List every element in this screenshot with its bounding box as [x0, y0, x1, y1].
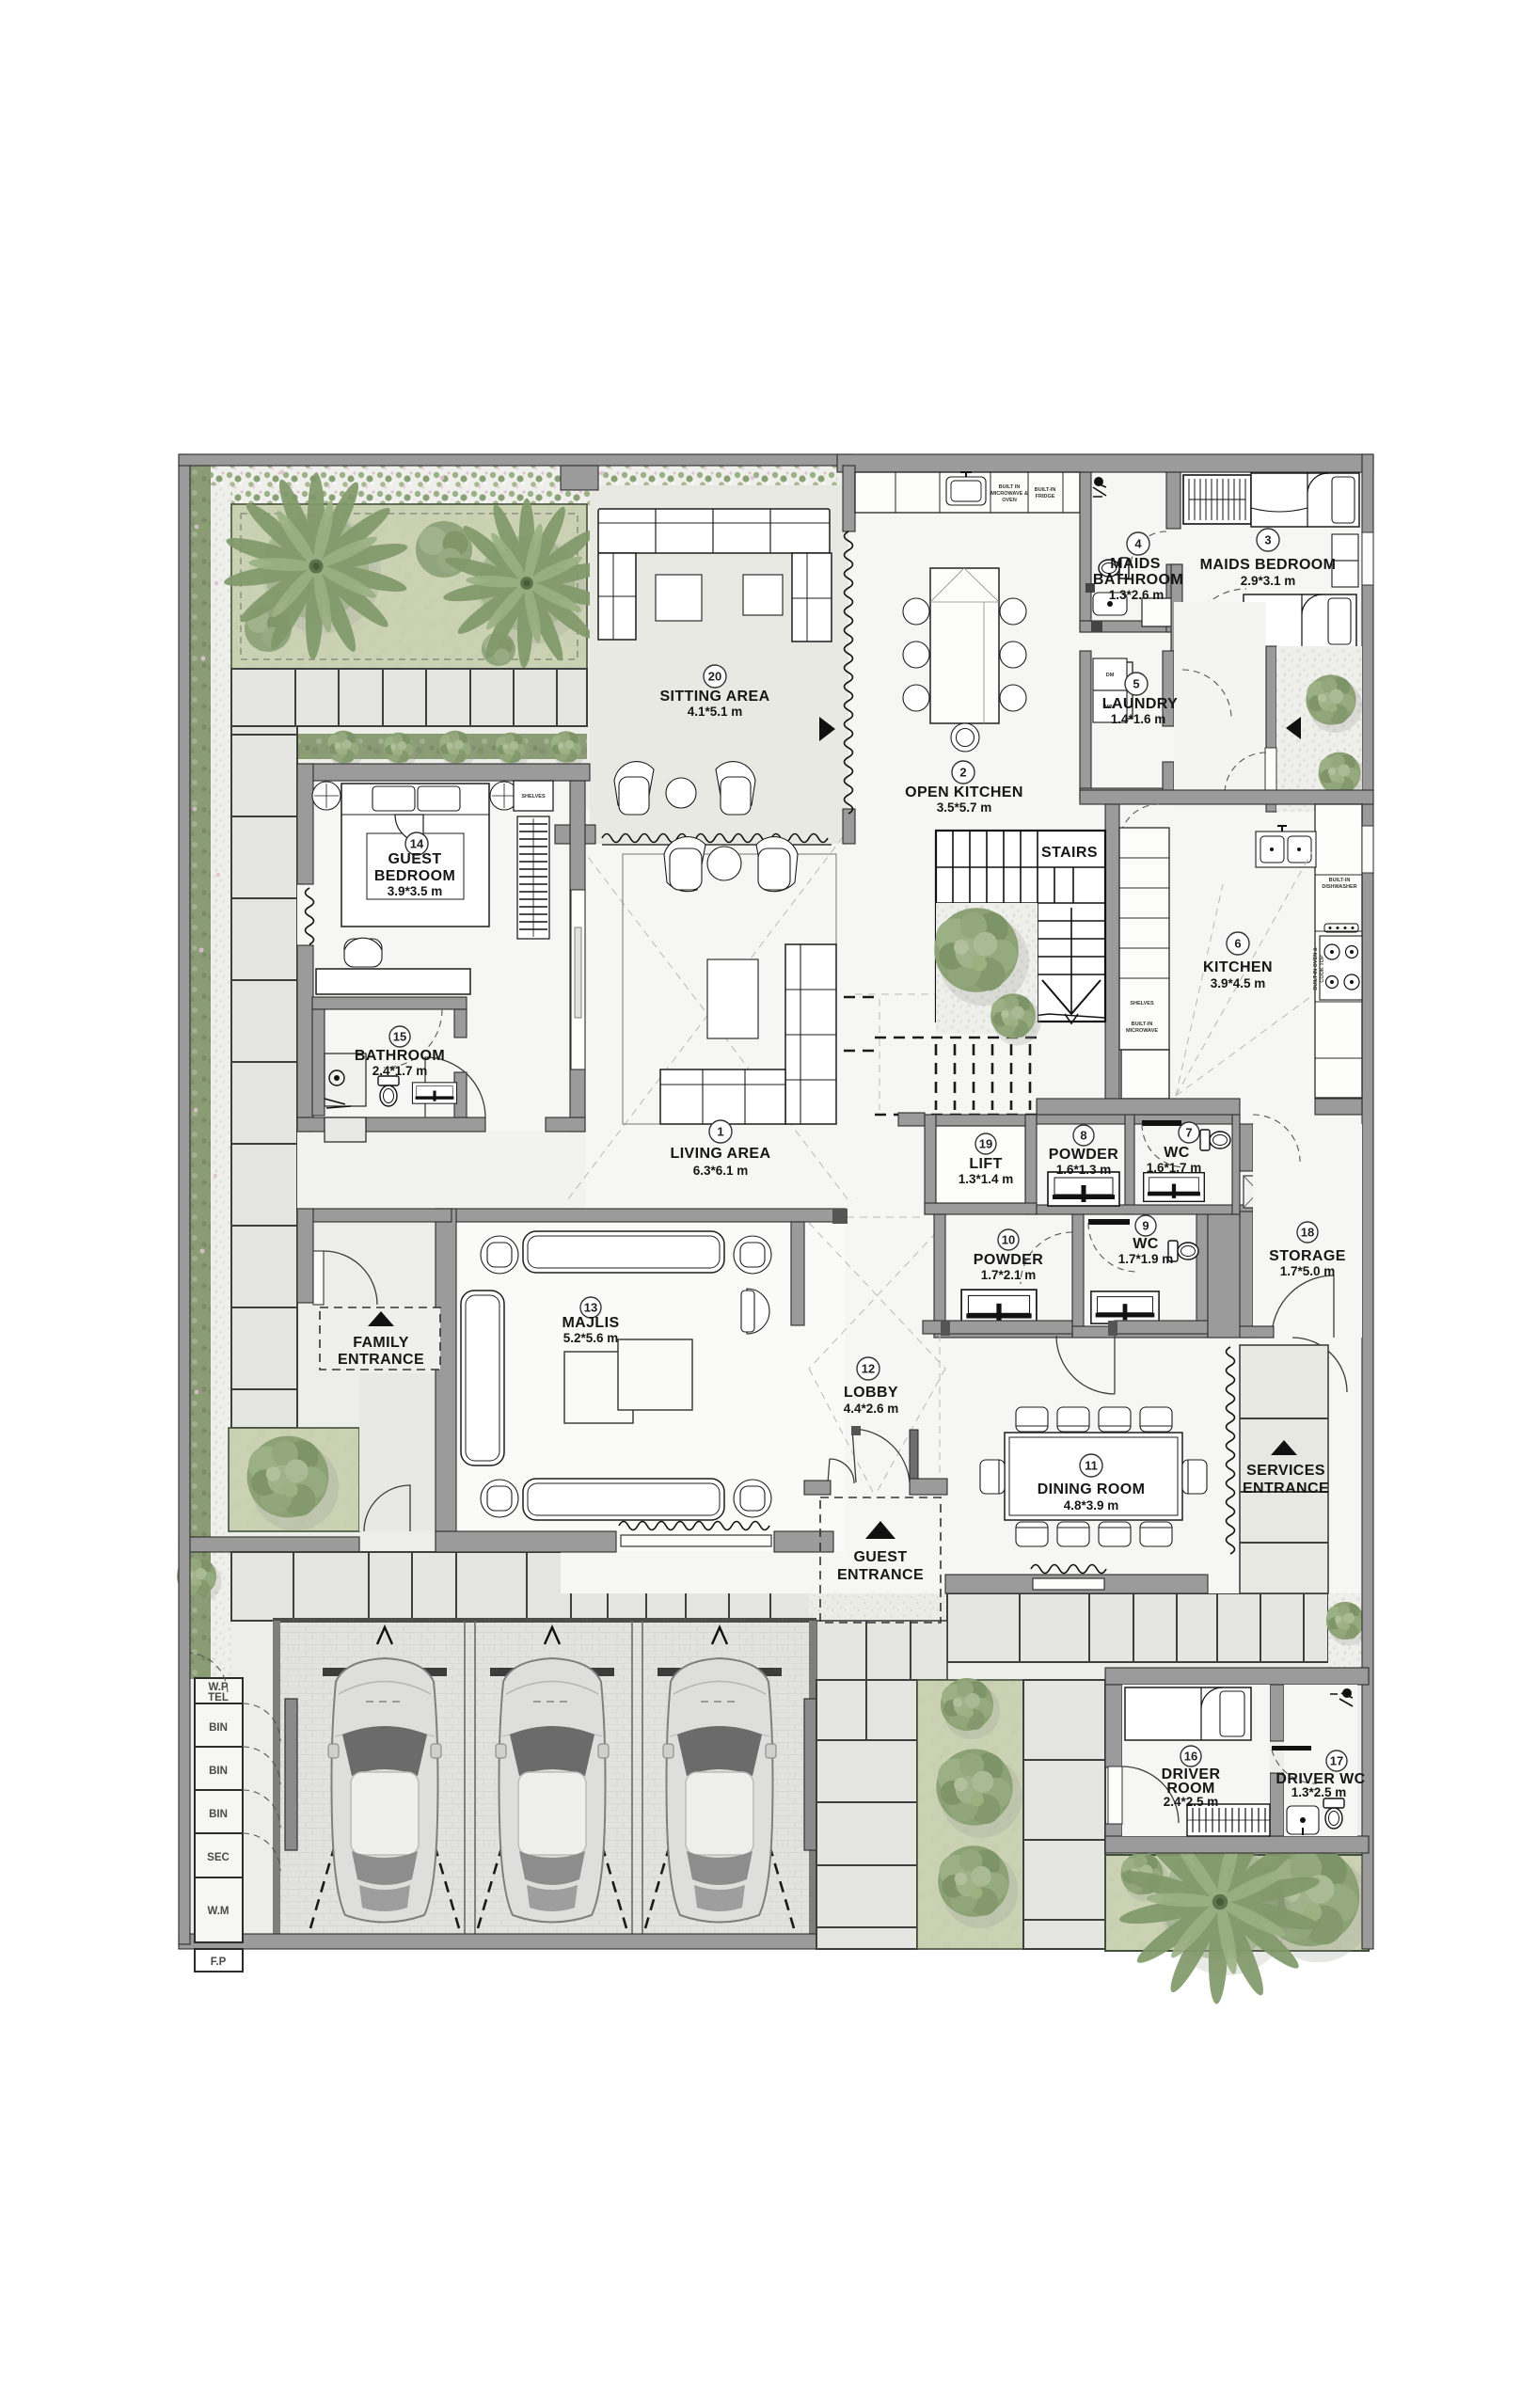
svg-text:1.6*1.7 m: 1.6*1.7 m — [1147, 1161, 1202, 1175]
svg-text:3.5*5.7 m: 3.5*5.7 m — [937, 800, 992, 815]
svg-text:BUILT-IN: BUILT-IN — [1035, 487, 1056, 493]
svg-text:2.4*1.7 m: 2.4*1.7 m — [372, 1064, 428, 1078]
svg-text:6: 6 — [1234, 937, 1241, 951]
svg-text:1.7*2.1 m: 1.7*2.1 m — [981, 1268, 1037, 1282]
svg-text:POWDER: POWDER — [1049, 1147, 1118, 1163]
svg-text:LAUNDRY: LAUNDRY — [1102, 696, 1178, 712]
svg-text:POWDER: POWDER — [974, 1252, 1043, 1268]
svg-text:ENTRANCE: ENTRANCE — [338, 1352, 424, 1368]
svg-text:KITCHEN: KITCHEN — [1203, 959, 1273, 975]
svg-text:DM: DM — [1106, 673, 1115, 678]
svg-text:2.4*2.5 m: 2.4*2.5 m — [1164, 1795, 1219, 1809]
svg-text:1.3*2.5 m: 1.3*2.5 m — [1291, 1785, 1347, 1799]
svg-text:WC: WC — [1164, 1145, 1190, 1161]
svg-text:1.3*1.4 m: 1.3*1.4 m — [959, 1172, 1014, 1186]
svg-text:8: 8 — [1080, 1129, 1086, 1143]
svg-text:20: 20 — [708, 670, 721, 684]
svg-text:10: 10 — [1002, 1233, 1015, 1247]
svg-text:4.4*2.6 m: 4.4*2.6 m — [844, 1402, 899, 1416]
svg-text:W.M: W.M — [208, 1906, 230, 1917]
svg-text:WC: WC — [1133, 1236, 1159, 1252]
svg-text:12: 12 — [862, 1362, 875, 1376]
svg-text:TEL: TEL — [208, 1692, 229, 1703]
svg-text:SHELVES: SHELVES — [1130, 1001, 1154, 1006]
svg-text:COOK TOP: COOK TOP — [1320, 955, 1325, 983]
svg-text:F.P: F.P — [211, 1956, 227, 1968]
svg-text:11: 11 — [1085, 1459, 1098, 1473]
svg-text:BUILT-IN OVEN &: BUILT-IN OVEN & — [1313, 947, 1319, 990]
svg-text:BEDROOM: BEDROOM — [374, 868, 455, 884]
svg-text:1.6*1.3 m: 1.6*1.3 m — [1056, 1163, 1112, 1177]
svg-text:17: 17 — [1330, 1754, 1343, 1768]
svg-text:4.8*3.9 m: 4.8*3.9 m — [1064, 1498, 1119, 1513]
svg-text:3: 3 — [1264, 533, 1271, 547]
svg-text:1.4*1.6 m: 1.4*1.6 m — [1111, 712, 1166, 726]
svg-text:STORAGE: STORAGE — [1269, 1248, 1346, 1264]
svg-text:9: 9 — [1142, 1219, 1149, 1233]
svg-text:7: 7 — [1185, 1126, 1192, 1140]
svg-text:STAIRS: STAIRS — [1041, 845, 1098, 861]
svg-text:BIN: BIN — [209, 1722, 228, 1734]
svg-text:18: 18 — [1301, 1226, 1314, 1240]
svg-text:SEC: SEC — [207, 1852, 230, 1863]
svg-text:4.1*5.1 m: 4.1*5.1 m — [688, 705, 743, 719]
svg-text:FRIDGE: FRIDGE — [1036, 494, 1055, 499]
svg-text:BUILT-IN: BUILT-IN — [1132, 1022, 1153, 1027]
svg-text:MICROWAVE &: MICROWAVE & — [990, 491, 1028, 497]
svg-text:OVEN: OVEN — [1002, 498, 1017, 503]
svg-text:1.7*5.0 m: 1.7*5.0 m — [1280, 1264, 1336, 1278]
svg-text:3.9*3.5 m: 3.9*3.5 m — [388, 884, 443, 898]
svg-text:ENTRANCE: ENTRANCE — [1243, 1481, 1329, 1497]
svg-text:15: 15 — [393, 1030, 406, 1044]
svg-text:2.9*3.1 m: 2.9*3.1 m — [1241, 574, 1296, 588]
svg-text:BIN: BIN — [209, 1809, 228, 1820]
svg-text:DINING ROOM: DINING ROOM — [1038, 1481, 1146, 1497]
svg-text:5.2*5.6 m: 5.2*5.6 m — [563, 1331, 619, 1345]
svg-text:MICROWAVE: MICROWAVE — [1126, 1028, 1158, 1034]
svg-text:GUEST: GUEST — [853, 1549, 907, 1565]
svg-text:4: 4 — [1134, 537, 1142, 551]
svg-text:OPEN KITCHEN: OPEN KITCHEN — [905, 784, 1023, 800]
svg-text:BATHROOM: BATHROOM — [1093, 572, 1183, 588]
svg-text:SERVICES: SERVICES — [1246, 1463, 1325, 1479]
svg-text:1.7*1.9 m: 1.7*1.9 m — [1118, 1252, 1174, 1266]
svg-text:ENTRANCE: ENTRANCE — [837, 1567, 924, 1583]
svg-text:BATHROOM: BATHROOM — [355, 1048, 445, 1064]
svg-text:BIN: BIN — [209, 1766, 228, 1777]
svg-text:SHELVES: SHELVES — [521, 794, 546, 800]
svg-text:LOBBY: LOBBY — [844, 1385, 898, 1401]
svg-text:16: 16 — [1184, 1750, 1197, 1764]
svg-text:SITTING AREA: SITTING AREA — [659, 689, 769, 705]
svg-text:3.9*4.5 m: 3.9*4.5 m — [1211, 976, 1266, 990]
svg-text:LIVING AREA: LIVING AREA — [671, 1146, 771, 1162]
svg-text:DISHWASHER: DISHWASHER — [1322, 884, 1356, 890]
svg-text:BUILT-IN: BUILT-IN — [1329, 878, 1351, 883]
svg-text:13: 13 — [584, 1301, 597, 1315]
svg-text:GUEST: GUEST — [388, 851, 441, 867]
svg-text:BUILT IN: BUILT IN — [999, 484, 1021, 490]
svg-text:MAJLIS: MAJLIS — [562, 1315, 619, 1331]
svg-text:1: 1 — [717, 1125, 723, 1139]
svg-text:MAIDS: MAIDS — [1110, 556, 1161, 572]
svg-text:MAIDS BEDROOM: MAIDS BEDROOM — [1200, 557, 1337, 573]
svg-text:5: 5 — [1133, 677, 1139, 691]
svg-text:1.3*2.6 m: 1.3*2.6 m — [1109, 588, 1165, 602]
svg-text:14: 14 — [410, 837, 424, 851]
svg-text:6.3*6.1 m: 6.3*6.1 m — [693, 1164, 749, 1178]
svg-text:LIFT: LIFT — [969, 1156, 1002, 1172]
svg-text:FAMILY: FAMILY — [353, 1335, 409, 1351]
svg-text:19: 19 — [979, 1137, 992, 1151]
svg-text:2: 2 — [959, 766, 966, 780]
